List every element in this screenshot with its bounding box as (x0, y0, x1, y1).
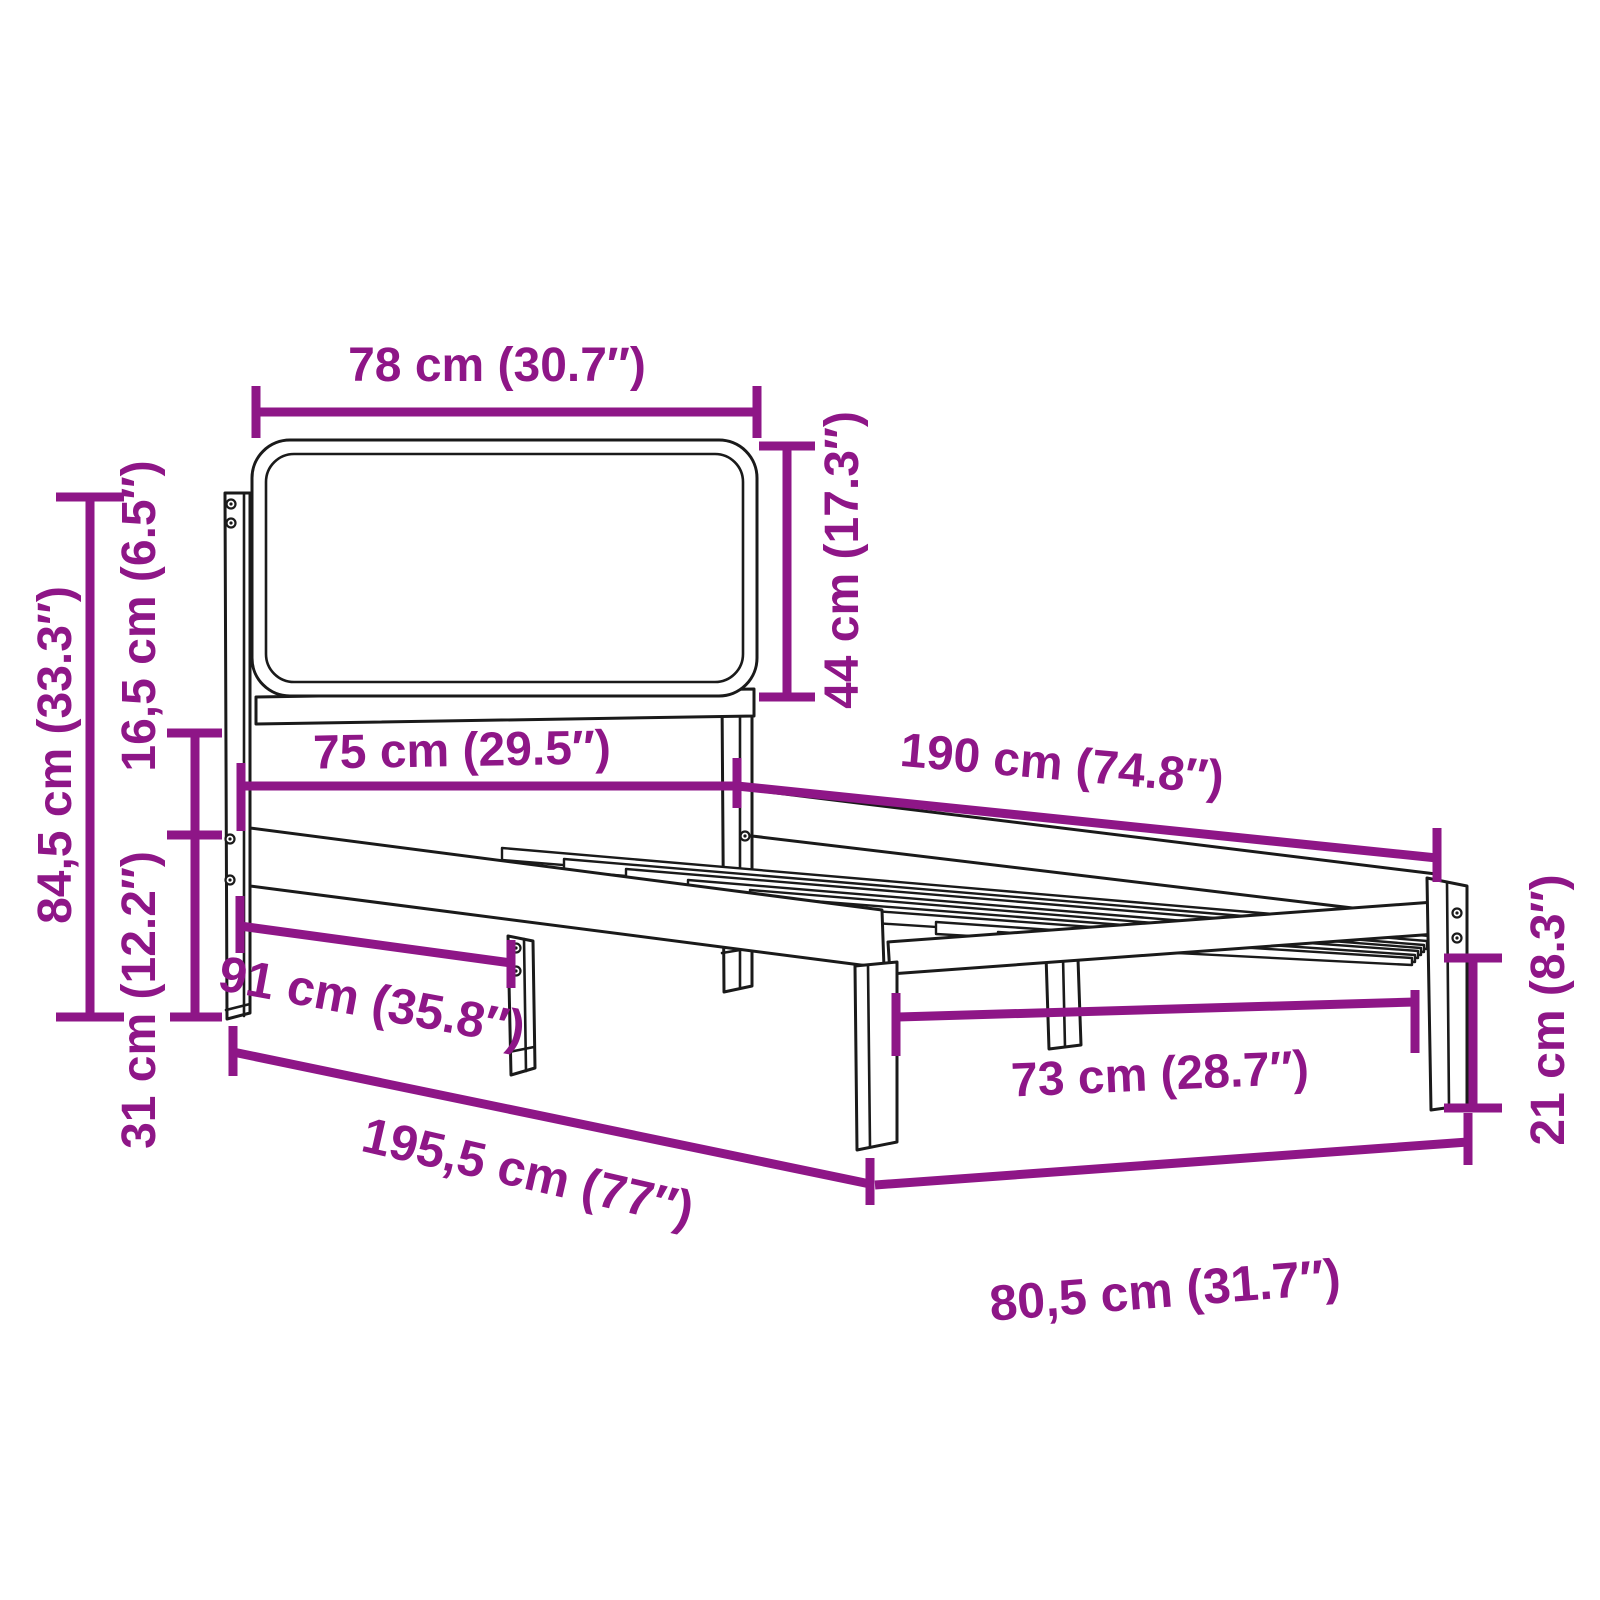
dim-label-leg-height: 21 cm (8.3″) (1525, 874, 1573, 1145)
dim-label-frame-height: 31 cm (12.2″) (116, 851, 164, 1149)
dim-label-headboard-height: 44 cm (17.3″) (819, 411, 867, 709)
side-rail-near (250, 828, 884, 968)
dim-line-foot-leg-span (896, 990, 1415, 1056)
diagram-canvas: 78 cm (30.7″) 44 cm (17.3″) 84,5 cm (33.… (0, 0, 1600, 1600)
dim-label-headboard-width: 78 cm (30.7″) (348, 342, 646, 390)
leg-foot-near (855, 962, 897, 1150)
headboard-panel (252, 440, 757, 696)
leg-far-centre (1046, 955, 1081, 1049)
dim-label-overall-height: 84,5 cm (33.3″) (32, 586, 80, 924)
bed-frame-drawing (0, 0, 1600, 1600)
leg-foot-far (1427, 878, 1467, 1110)
dim-line-clearance-and-frame-height (167, 733, 222, 1017)
dim-line-overall-width (875, 1113, 1468, 1185)
dim-label-headboard-clearance: 16,5 cm (6.5″) (116, 460, 164, 771)
dim-label-inner-width: 75 cm (29.5″) (313, 724, 612, 777)
dim-line-headboard-width (256, 386, 757, 438)
dim-label-foot-leg-span: 73 cm (28.7″) (1010, 1045, 1310, 1106)
dim-line-headboard-height (759, 446, 815, 697)
